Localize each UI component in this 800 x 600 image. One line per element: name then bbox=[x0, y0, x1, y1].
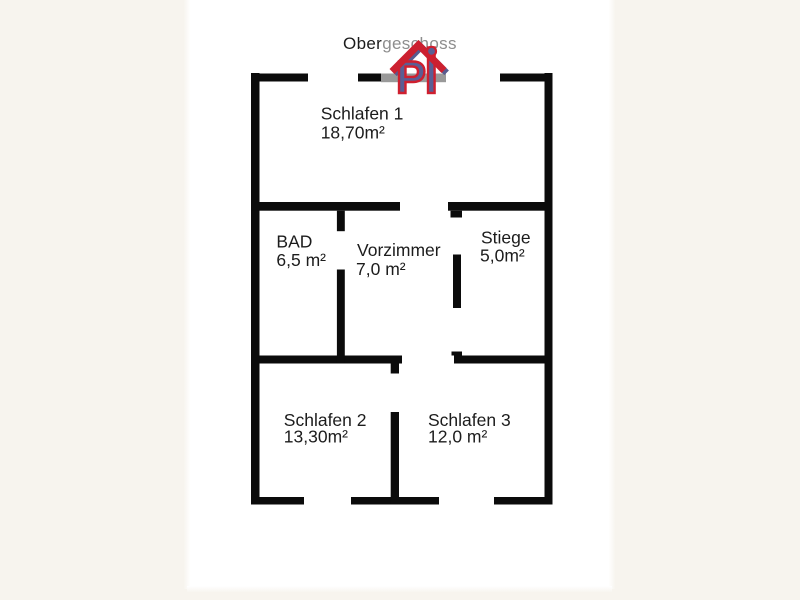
svg-text:Vorzimmer: Vorzimmer bbox=[357, 240, 441, 260]
svg-text:18,70m²: 18,70m² bbox=[321, 123, 385, 143]
svg-text:5,0m²: 5,0m² bbox=[480, 246, 525, 266]
svg-text:13,30m²: 13,30m² bbox=[284, 426, 348, 446]
svg-text:7,0 m²: 7,0 m² bbox=[356, 259, 406, 279]
svg-text:Obergeschoss: Obergeschoss bbox=[343, 34, 457, 53]
svg-text:BAD: BAD bbox=[276, 231, 312, 251]
svg-text:6,5 m²: 6,5 m² bbox=[276, 250, 326, 270]
svg-text:12,0 m²: 12,0 m² bbox=[428, 426, 487, 446]
svg-text:Schlafen 1: Schlafen 1 bbox=[321, 103, 404, 123]
